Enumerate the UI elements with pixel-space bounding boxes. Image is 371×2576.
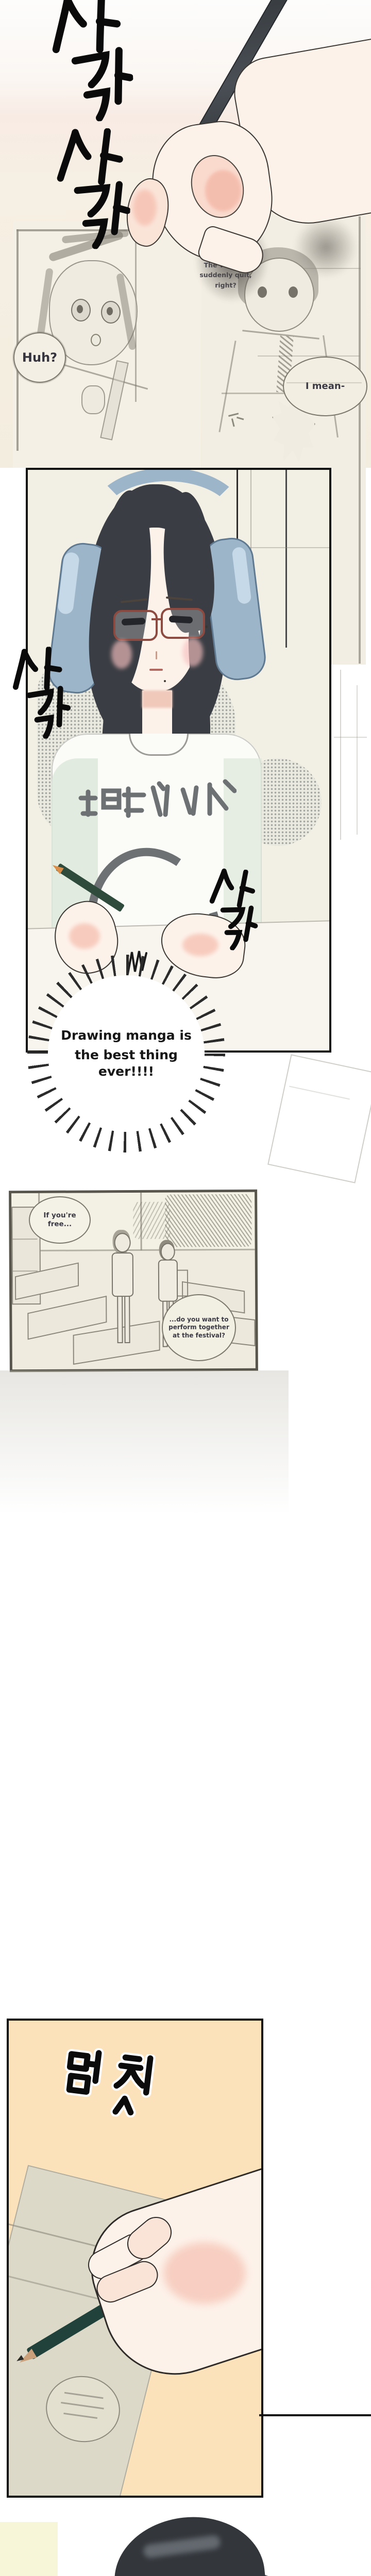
sfx-scratch-1: 사각 xyxy=(46,0,136,124)
sfx-scratch-strokes xyxy=(202,866,264,953)
bubble-text-line: If you're xyxy=(43,1211,76,1220)
figure-leg xyxy=(124,1296,130,1343)
glasses-right-lens xyxy=(161,608,205,639)
webtoon-page: The vocalist suddenly quit, right? 설렁 xyxy=(0,0,371,2576)
ruler-line xyxy=(286,382,362,383)
figure-leg xyxy=(117,1296,123,1343)
scan-fade xyxy=(0,1370,289,1551)
bedroom-wall xyxy=(0,2522,58,2576)
sketch-pupil xyxy=(107,307,113,315)
cabinet-line xyxy=(13,1270,38,1272)
burst-text-line: Drawing manga is xyxy=(61,1027,192,1044)
scribble-stroke xyxy=(228,413,239,417)
nose-line xyxy=(156,651,157,659)
bubble-text: Huh? xyxy=(22,350,57,366)
figure-torso xyxy=(112,1252,133,1297)
scan-mark xyxy=(357,685,358,835)
panel-frame-line xyxy=(16,229,19,451)
scribble-stroke xyxy=(61,2402,104,2410)
speech-bubble-festival: ...do you want to perform together at th… xyxy=(162,1294,236,1361)
burst-text-line: the best thing ever!!!! xyxy=(48,1047,205,1080)
tree-scribble xyxy=(133,1202,170,1239)
sfx-scratch-strokes xyxy=(9,646,72,740)
bubble-text-line: ...do you want to xyxy=(169,1316,228,1324)
door-frame-line xyxy=(285,470,287,648)
figure-head xyxy=(161,1243,175,1261)
speech-bubble-huh: Huh? xyxy=(13,332,66,383)
scribble-stroke xyxy=(237,417,244,420)
cheek-blush xyxy=(111,640,132,669)
speech-bubble-if-free: If you're free... xyxy=(29,1196,91,1244)
sfx-flinch: 멈칫 xyxy=(58,2044,157,2121)
scan-mark xyxy=(334,737,367,738)
scribble-stroke xyxy=(231,418,235,427)
panel-portrait: 結束バンド xyxy=(26,468,331,1053)
scribble-stroke xyxy=(64,2392,104,2399)
bubble-text-line: at the festival? xyxy=(173,1332,225,1340)
sfx-scratch-4: 사각 xyxy=(202,866,264,953)
sketch-fist xyxy=(81,385,105,414)
beauty-mark xyxy=(205,625,208,628)
burst-bubble-core: Drawing manga is the best thing ever!!!! xyxy=(48,975,205,1132)
thumb-blush xyxy=(133,190,157,226)
chin-mark xyxy=(164,680,166,682)
eye xyxy=(169,616,193,623)
bubble-text-line: free... xyxy=(48,1220,72,1229)
sketch-pupil xyxy=(77,305,83,313)
tree-scribble xyxy=(165,1194,252,1247)
figure-head xyxy=(114,1233,131,1252)
sfx-scratch-2: 사각 xyxy=(52,126,133,250)
bubble-text-line: perform together xyxy=(168,1324,229,1331)
mouth xyxy=(149,669,163,671)
panel-extension-line xyxy=(259,2414,371,2416)
cheek-blush xyxy=(182,638,203,667)
eye xyxy=(122,618,146,625)
cabinet-line xyxy=(13,1239,38,1240)
glasses-bridge xyxy=(151,618,163,620)
scan-mark xyxy=(340,670,341,840)
ruler-line xyxy=(258,355,360,357)
scribble-stroke xyxy=(63,2413,97,2419)
sketch-mouth xyxy=(91,334,101,346)
sfx-scratch-3: 사각 xyxy=(9,646,72,740)
sfx-scratch-strokes xyxy=(46,0,136,124)
scan-page-corner xyxy=(267,1054,371,1183)
neck-shadow xyxy=(142,690,172,708)
figure-torso xyxy=(158,1260,178,1302)
speech-bubble-i-mean: I mean- xyxy=(283,357,367,416)
glasses-left-lens xyxy=(113,610,158,641)
sfx-scratch-strokes xyxy=(52,126,133,250)
arm-blush xyxy=(163,2242,246,2304)
knuckle-blush xyxy=(205,170,241,211)
sfx-flinch-strokes xyxy=(58,2044,157,2121)
hand-blush xyxy=(69,923,100,949)
sketch-figure-girl-a xyxy=(110,1230,137,1348)
